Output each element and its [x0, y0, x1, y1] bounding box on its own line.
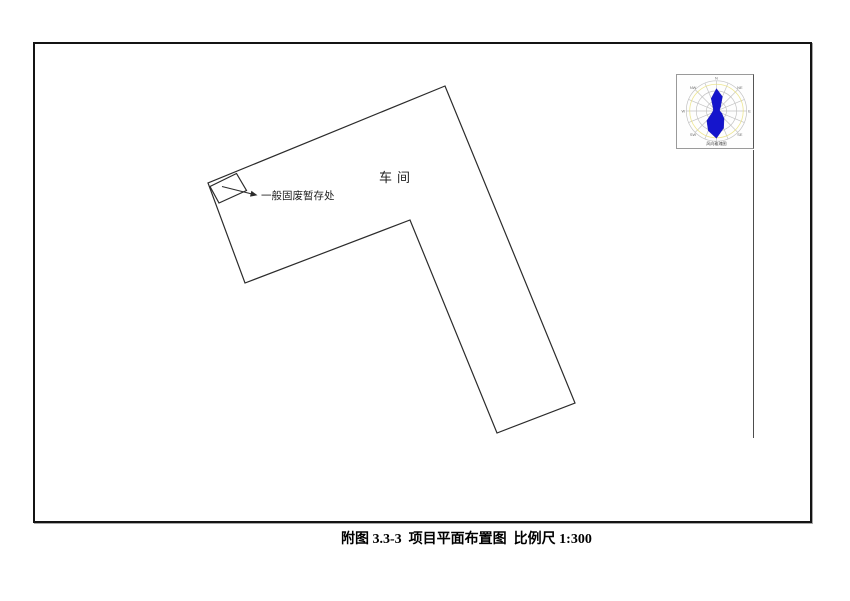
wind-rose-panel: NNEESESSWWNW 风向玫瑰图 — [676, 74, 754, 149]
svg-text:NE: NE — [737, 85, 743, 90]
building-outline — [208, 86, 575, 433]
svg-text:E: E — [748, 108, 751, 113]
wind-rose-chart: NNEESESSWWNW 风向玫瑰图 — [677, 75, 753, 148]
svg-text:SE: SE — [737, 132, 743, 137]
wind-rose-caption: 风向玫瑰图 — [706, 140, 726, 146]
figure-caption: 附图 3.3-3 项目平面布置图 比例尺 1:300 — [341, 528, 592, 548]
waste-storage-label: 一般固废暂存处 — [261, 188, 335, 203]
figure-page: 车间 一般固废暂存处 NNEESESSWWNW 风向玫瑰图 附图 3.3-3 项… — [0, 0, 850, 601]
svg-text:W: W — [682, 108, 686, 113]
svg-text:NW: NW — [690, 85, 697, 90]
workshop-label: 车间 — [379, 167, 415, 186]
wind-rose-shape — [707, 89, 724, 139]
svg-text:SW: SW — [690, 132, 697, 137]
svg-text:N: N — [715, 75, 718, 80]
